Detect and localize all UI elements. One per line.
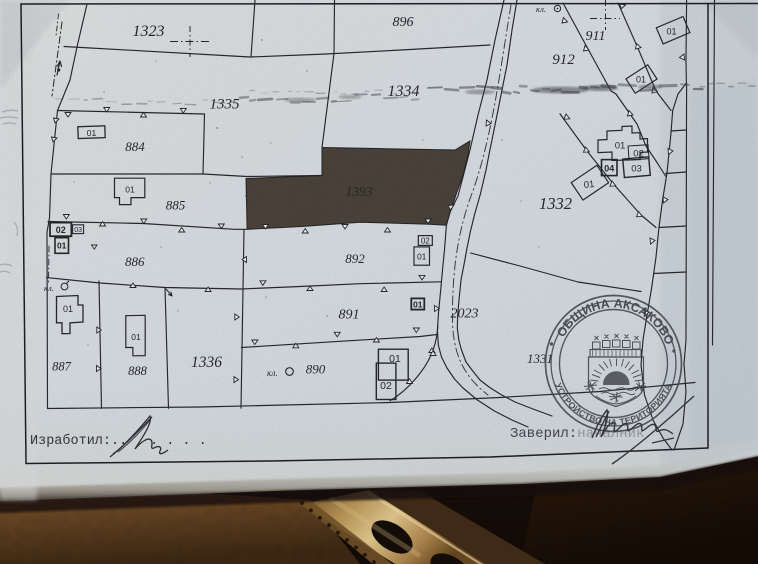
svg-text:911: 911 bbox=[586, 29, 606, 44]
svg-text:884: 884 bbox=[125, 139, 145, 154]
svg-text:01: 01 bbox=[636, 75, 646, 85]
svg-text:Заверил:началник: Заверил:началник bbox=[510, 426, 644, 442]
svg-text:1335: 1335 bbox=[210, 97, 241, 113]
svg-text:888: 888 bbox=[128, 364, 148, 378]
svg-text:890: 890 bbox=[306, 362, 326, 377]
svg-text:02: 02 bbox=[380, 380, 392, 392]
svg-text:кл.: кл. bbox=[536, 4, 546, 14]
svg-text:1331: 1331 bbox=[527, 351, 553, 366]
svg-text:01: 01 bbox=[87, 128, 97, 138]
svg-text:Изработил:..: Изработил:.. bbox=[30, 434, 127, 449]
svg-text:01: 01 bbox=[583, 179, 595, 191]
svg-text:02: 02 bbox=[56, 225, 66, 235]
svg-text:1332: 1332 bbox=[539, 194, 572, 213]
svg-text:01: 01 bbox=[666, 27, 676, 37]
svg-text:896: 896 bbox=[393, 15, 414, 30]
svg-text:912: 912 bbox=[552, 52, 575, 68]
svg-text:1323: 1323 bbox=[133, 23, 165, 40]
svg-text:04: 04 bbox=[604, 164, 614, 174]
svg-text:892: 892 bbox=[345, 251, 365, 266]
svg-text:886: 886 bbox=[125, 254, 145, 269]
svg-text:2023: 2023 bbox=[451, 307, 479, 322]
svg-text:885: 885 bbox=[166, 198, 186, 213]
svg-text:1336: 1336 bbox=[191, 354, 222, 371]
svg-text:03: 03 bbox=[631, 164, 642, 175]
svg-text:01: 01 bbox=[417, 252, 427, 262]
svg-text:891: 891 bbox=[339, 308, 360, 323]
svg-text:02: 02 bbox=[421, 237, 430, 246]
svg-text:01: 01 bbox=[131, 332, 141, 342]
svg-text:01: 01 bbox=[125, 185, 135, 195]
svg-text:01: 01 bbox=[63, 304, 73, 314]
svg-text:1393: 1393 bbox=[346, 184, 373, 199]
svg-text:01: 01 bbox=[413, 300, 423, 310]
svg-text:кл.: кл. bbox=[267, 368, 278, 378]
svg-text:01: 01 bbox=[615, 141, 626, 152]
svg-text:кл.: кл. bbox=[44, 283, 54, 293]
svg-text:01: 01 bbox=[57, 241, 67, 251]
svg-text:03: 03 bbox=[74, 227, 82, 234]
svg-text:887: 887 bbox=[52, 360, 72, 374]
